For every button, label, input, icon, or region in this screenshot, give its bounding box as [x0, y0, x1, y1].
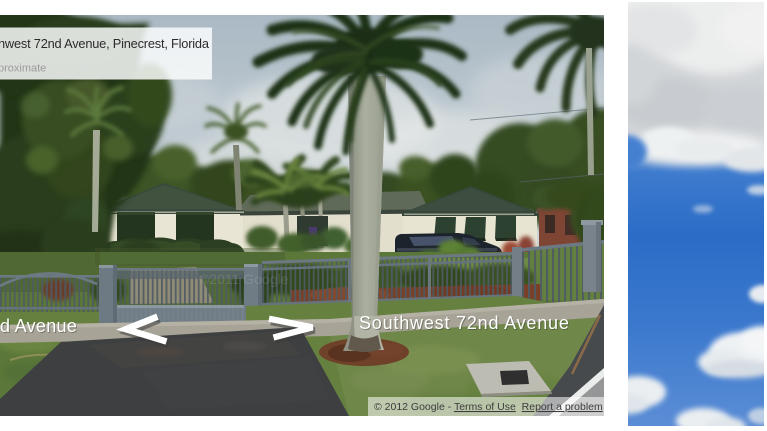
svg-text:proximate: proximate [0, 63, 46, 75]
svg-text:©2011 Google: ©2011 Google [199, 271, 289, 287]
svg-text:d Avenue: d Avenue [0, 316, 77, 336]
svg-text:hwest 72nd Avenue, Pinecrest,: hwest 72nd Avenue, Pinecrest, Florida [0, 36, 210, 51]
svg-text:Southwest 72nd Avenue: Southwest 72nd Avenue [359, 313, 570, 333]
svg-text:© 2012 Google - Terms of Use: © 2012 Google - Terms of Use Report a pr… [374, 401, 603, 413]
